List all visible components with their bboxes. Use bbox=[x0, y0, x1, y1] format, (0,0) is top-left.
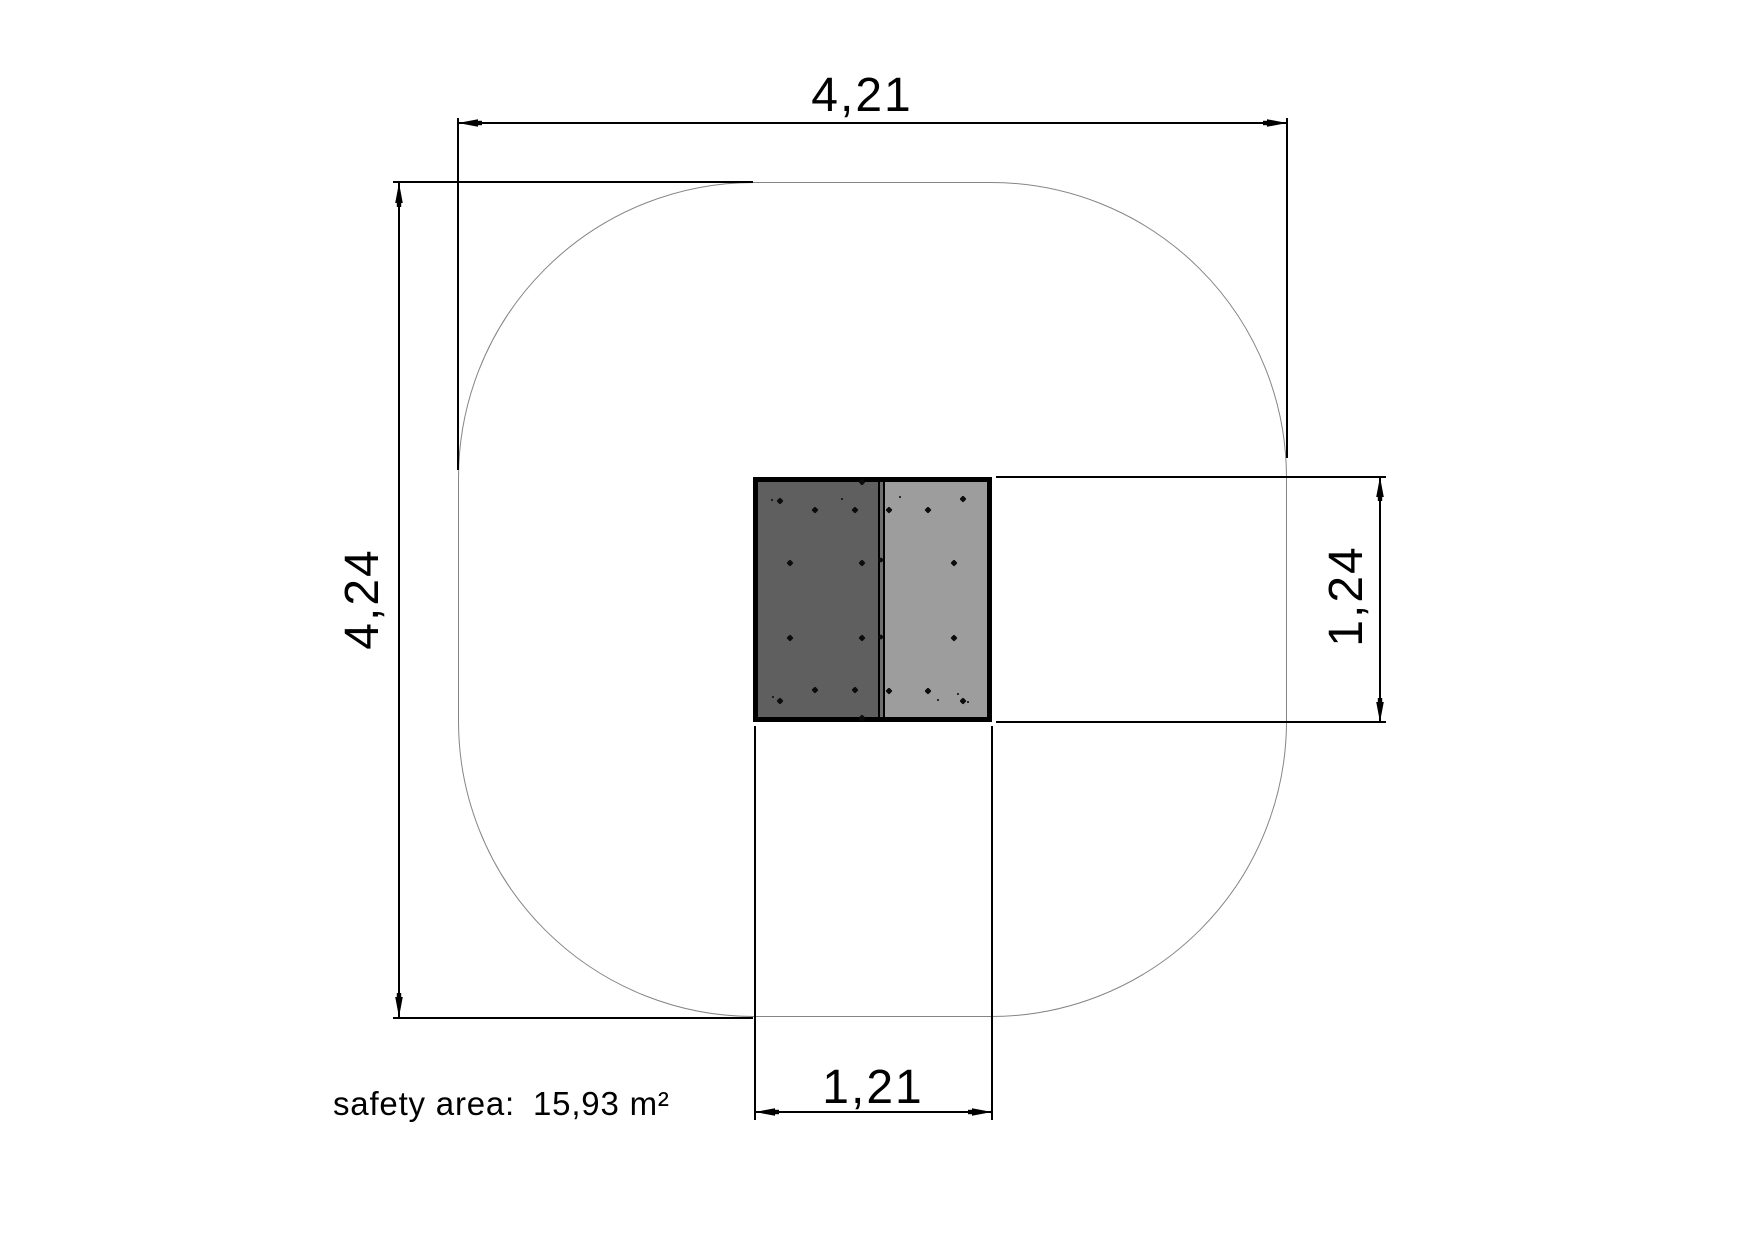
extension-line-overall-height-top bbox=[393, 181, 753, 183]
device-top-view bbox=[753, 477, 992, 722]
extension-line-overall-width-left bbox=[457, 118, 459, 470]
dimension-line-item-height bbox=[1379, 477, 1381, 722]
extension-line-item-width-left bbox=[754, 726, 756, 1120]
extension-line-item-height-bottom bbox=[996, 721, 1386, 723]
arrowhead-up-icon bbox=[394, 183, 404, 207]
overall-height-label: 4,24 bbox=[339, 548, 387, 649]
safety-area-caption-value: 15,93 m² bbox=[533, 1085, 670, 1123]
arrowhead-up-icon bbox=[1375, 477, 1385, 501]
dimension-line-overall-height bbox=[398, 183, 400, 1017]
arrowhead-down-icon bbox=[1375, 698, 1385, 722]
safety-area-caption-label: safety area: bbox=[333, 1085, 515, 1123]
extension-line-overall-width-right bbox=[1286, 118, 1288, 458]
arrowhead-right-icon bbox=[1263, 118, 1287, 128]
device-panel-left bbox=[758, 482, 878, 717]
arrowhead-left-icon bbox=[458, 118, 482, 128]
item-height-label: 1,24 bbox=[1323, 545, 1371, 646]
arrowhead-right-icon bbox=[968, 1107, 992, 1117]
item-width-label: 1,21 bbox=[822, 1064, 923, 1112]
arrowhead-down-icon bbox=[394, 993, 404, 1017]
extension-line-item-width-right bbox=[991, 726, 993, 1120]
technical-drawing-canvas: 4,21 4,24 1,24 1,21 safety area: 15,93 m… bbox=[0, 0, 1753, 1240]
safety-area-caption: safety area: 15,93 m² bbox=[333, 1085, 670, 1123]
overall-width-label: 4,21 bbox=[811, 72, 912, 120]
extension-line-overall-height-bottom bbox=[393, 1017, 753, 1019]
extension-line-item-height-top bbox=[996, 476, 1386, 478]
arrowhead-left-icon bbox=[755, 1107, 779, 1117]
device-panel-divider bbox=[878, 482, 885, 717]
dimension-line-overall-width bbox=[458, 122, 1287, 124]
device-panel-right bbox=[885, 482, 987, 717]
